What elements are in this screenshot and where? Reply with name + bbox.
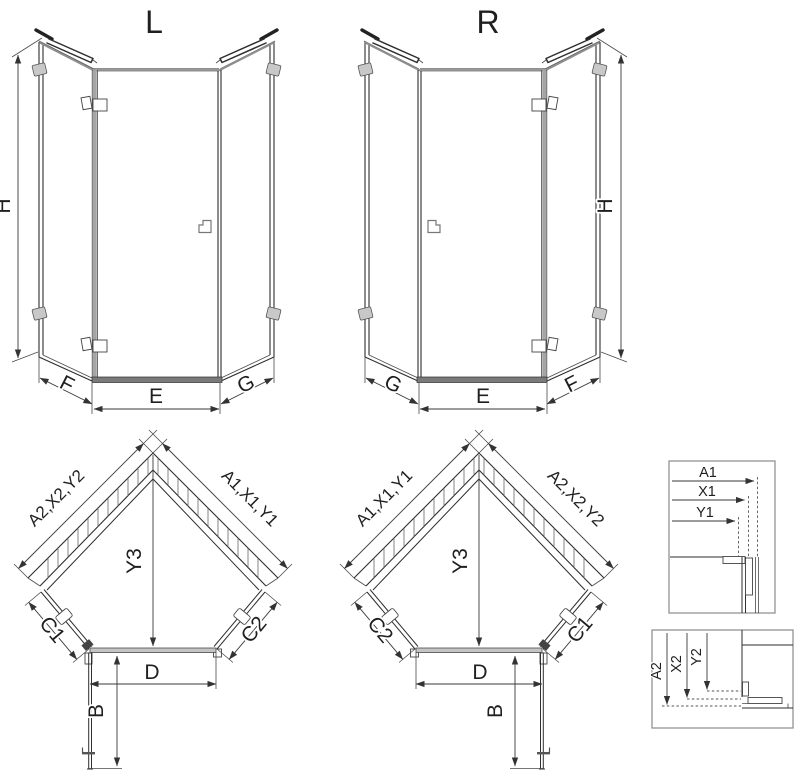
- view-label-right: R: [476, 4, 499, 40]
- dim-label-bottom: E: [476, 385, 490, 408]
- detail-inset-bottom: A2 X2 Y2: [649, 630, 793, 728]
- technical-drawing-page: L H F E G R H G E F A2,X2,Y2 A1,X1,Y1 Y3…: [0, 0, 800, 776]
- dim-label-width: D: [144, 661, 159, 684]
- detail-label-x1: X1: [698, 484, 716, 500]
- glass-clamp: [743, 682, 749, 696]
- detail-label-a2: A2: [649, 662, 665, 680]
- detail-label-y1: Y1: [696, 505, 714, 521]
- detail-inset-top: A1 X1 Y1: [669, 461, 775, 613]
- detail-label-x2: X2: [669, 655, 685, 673]
- dim-label-bottom: E: [149, 385, 163, 408]
- view-label-left: L: [145, 4, 163, 40]
- dim-label-center: Y3: [449, 548, 472, 574]
- dim-label-center: Y3: [123, 548, 146, 574]
- detail-frame: [669, 461, 775, 613]
- shower-enclosure-diagram: L H F E G R H G E F A2,X2,Y2 A1,X1,Y1 Y3…: [0, 0, 800, 776]
- detail-label-a1: A1: [699, 465, 717, 481]
- detail-label-y2: Y2: [689, 648, 705, 666]
- bracket-bar: [748, 698, 782, 704]
- dim-label-width: D: [472, 661, 487, 684]
- dim-label-height: H: [0, 198, 15, 213]
- dim-label-door: B: [85, 704, 108, 718]
- dim-label-height: H: [594, 198, 617, 213]
- dim-label-door: B: [484, 704, 507, 718]
- profile-section: [746, 558, 753, 595]
